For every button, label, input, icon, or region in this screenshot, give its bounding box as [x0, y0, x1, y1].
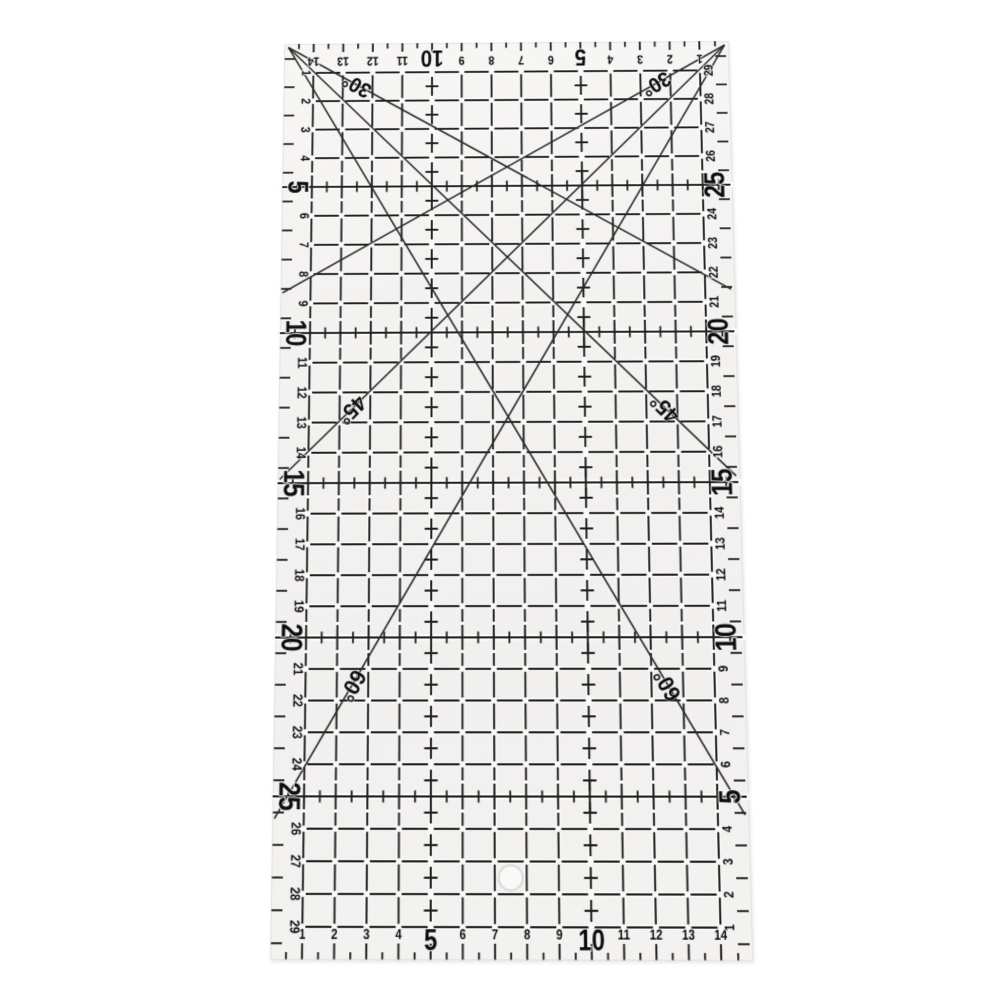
svg-text:18: 18	[292, 569, 306, 582]
svg-text:16: 16	[712, 445, 726, 457]
svg-text:14: 14	[293, 447, 307, 460]
svg-text:7: 7	[719, 729, 733, 735]
svg-text:27: 27	[287, 855, 301, 868]
svg-text:12: 12	[715, 568, 729, 581]
svg-text:17: 17	[711, 415, 725, 427]
svg-text:12: 12	[367, 54, 379, 67]
svg-text:9: 9	[556, 928, 563, 943]
svg-text:9: 9	[295, 300, 309, 306]
svg-text:10: 10	[279, 320, 311, 347]
svg-text:20: 20	[702, 318, 735, 345]
svg-text:15: 15	[706, 468, 739, 496]
svg-text:8: 8	[296, 271, 310, 277]
svg-text:9: 9	[717, 665, 731, 671]
svg-text:25: 25	[272, 782, 306, 811]
svg-text:11: 11	[715, 599, 729, 612]
svg-text:4: 4	[607, 52, 614, 65]
svg-text:1: 1	[723, 924, 738, 931]
svg-text:1: 1	[299, 70, 312, 76]
svg-text:2: 2	[722, 891, 737, 898]
svg-text:5: 5	[424, 923, 437, 956]
svg-text:10: 10	[421, 45, 444, 72]
svg-text:14: 14	[713, 506, 727, 519]
svg-text:6: 6	[548, 53, 554, 66]
svg-text:3: 3	[363, 928, 370, 943]
svg-text:26: 26	[705, 150, 719, 162]
svg-text:8: 8	[718, 697, 732, 703]
svg-text:3: 3	[722, 858, 737, 865]
svg-text:23: 23	[707, 237, 721, 249]
svg-text:10: 10	[710, 623, 744, 651]
svg-text:13: 13	[294, 416, 308, 428]
svg-text:3: 3	[637, 52, 643, 65]
svg-text:22: 22	[290, 694, 304, 707]
svg-text:6: 6	[460, 928, 466, 943]
svg-text:8: 8	[524, 928, 531, 943]
svg-text:11: 11	[295, 357, 309, 369]
svg-text:13: 13	[337, 54, 349, 67]
svg-text:26: 26	[288, 822, 302, 835]
svg-text:7: 7	[518, 53, 524, 66]
svg-text:20: 20	[275, 623, 308, 651]
svg-text:14: 14	[307, 54, 320, 67]
svg-text:2: 2	[331, 928, 338, 943]
svg-text:11: 11	[397, 54, 408, 67]
svg-text:5: 5	[714, 789, 748, 804]
svg-text:3: 3	[298, 127, 311, 133]
svg-text:12: 12	[650, 928, 663, 943]
svg-text:29: 29	[702, 65, 716, 77]
svg-text:9: 9	[459, 53, 465, 66]
svg-text:5: 5	[575, 44, 587, 71]
svg-text:6: 6	[297, 213, 311, 219]
svg-text:21: 21	[708, 295, 722, 308]
svg-text:7: 7	[296, 242, 310, 248]
svg-text:28: 28	[703, 93, 717, 105]
svg-text:23: 23	[289, 726, 303, 739]
svg-text:15: 15	[277, 469, 310, 497]
svg-text:13: 13	[682, 928, 695, 943]
svg-text:6: 6	[719, 761, 733, 768]
svg-text:8: 8	[488, 53, 494, 66]
svg-text:13: 13	[714, 537, 728, 550]
svg-text:19: 19	[709, 355, 723, 367]
svg-text:22: 22	[707, 266, 721, 278]
svg-text:17: 17	[292, 538, 306, 550]
svg-text:29: 29	[286, 920, 301, 933]
svg-text:24: 24	[289, 758, 303, 772]
svg-text:5: 5	[282, 180, 313, 193]
svg-text:18: 18	[710, 385, 724, 397]
svg-text:24: 24	[706, 207, 720, 219]
svg-text:25: 25	[699, 172, 731, 198]
svg-text:4: 4	[395, 928, 402, 943]
svg-text:2: 2	[667, 52, 673, 65]
svg-text:7: 7	[492, 928, 498, 943]
svg-text:19: 19	[291, 600, 305, 613]
svg-text:11: 11	[618, 928, 630, 943]
svg-text:16: 16	[292, 507, 306, 519]
svg-text:1: 1	[697, 52, 703, 65]
svg-text:4: 4	[721, 825, 736, 832]
svg-text:10: 10	[578, 924, 605, 957]
svg-text:27: 27	[704, 121, 718, 133]
svg-text:21: 21	[290, 663, 304, 676]
svg-text:12: 12	[294, 387, 308, 399]
svg-text:2: 2	[298, 98, 311, 104]
svg-text:4: 4	[298, 155, 311, 161]
svg-text:28: 28	[287, 887, 301, 900]
